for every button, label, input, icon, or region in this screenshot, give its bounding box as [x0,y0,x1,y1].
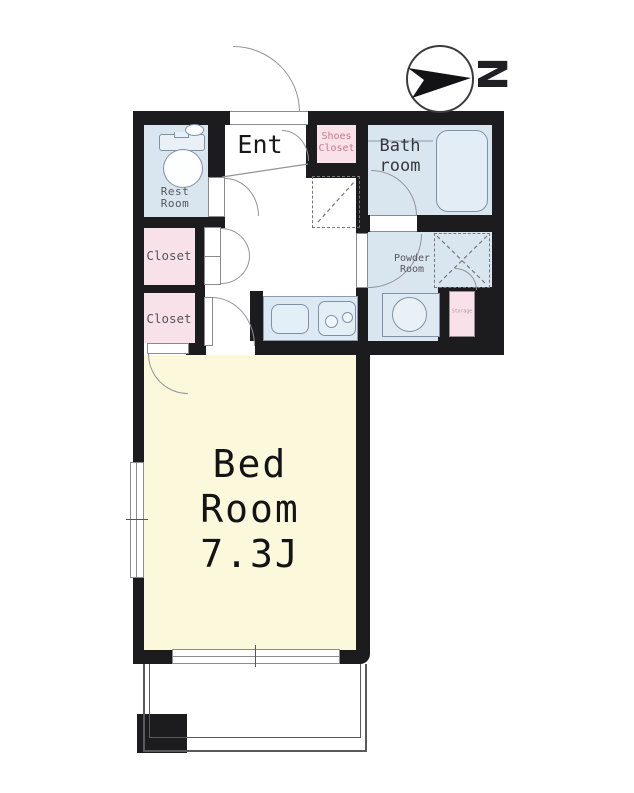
rest-room-label-line2: Room [161,197,190,210]
wall-bedroom-top [255,341,368,355]
closet-upper-label: Closet [143,249,195,263]
compass-north-label: N [469,53,513,95]
wall-right [492,111,504,355]
entrance-door-arc [233,46,300,112]
closet-upper-door-arc-bottom [221,256,250,284]
powder-room-label-line2: Room [400,264,424,275]
wall-bedroom-bottom-right [340,650,358,664]
bed-room-size-label: 7.3J [200,532,300,576]
toilet-bowl [163,149,203,188]
wall-top-right [306,111,504,125]
bedroom-left-window [130,462,144,578]
closet-upper-door-split [205,256,220,257]
storage-label: Storage [449,309,475,315]
bedroom-door-arc [212,297,255,346]
compass-circle [406,45,474,113]
bath-room-door-threshold [370,215,417,232]
washing-machine-drum [392,297,427,332]
bed-room-label-line2: Room [200,487,300,531]
floor-plan: N Ent RestRoom ShoesCloset Bathroom Powd… [0,0,634,793]
powder-room-label: PowderRoom [381,253,443,275]
stove-burner-right [342,312,353,323]
wall-closet-divider [133,285,205,293]
rest-room-door-arc [225,178,259,216]
bedroom-left-window-tick [126,519,148,520]
powder-room-label-line1: Powder [394,253,430,264]
bed-room-label-line1: Bed [213,442,288,486]
powder-room-door-leaf [356,233,368,288]
bed-room-label: BedRoom7.3J [150,442,350,577]
refrigerator-space [312,176,360,228]
wall-restroom-right-upper [208,123,225,178]
wall-bath-powder-right [417,215,492,232]
shoes-closet-label-line2: Closet [318,143,354,154]
closet-upper-door-arc-top [221,228,250,256]
bath-room-label-line1: Bath [380,136,421,156]
shoes-closet-label: ShoesCloset [315,131,358,155]
bath-room-label-line2: room [380,156,421,176]
bath-room-label: Bathroom [366,136,434,176]
closet-lower-label: Closet [143,312,195,326]
bedroom-left-window-midline [136,462,137,578]
wall-bedroom-bottom-left [133,650,173,664]
north-arrow-icon [408,47,472,111]
shoes-closet-label-line1: Shoes [321,131,351,142]
rest-room-sink [185,124,204,136]
rest-room-door-leaf [208,177,225,217]
kitchen-sink [271,304,309,334]
rest-room-label: RestRoom [146,186,204,210]
stove-burner-left [325,315,338,328]
wall-bedroom-top-stub [186,343,206,355]
wall-bedroom-right [356,341,370,664]
bathtub [436,130,488,212]
wall-powder-bottom [356,341,504,355]
balcony-inner [149,664,361,738]
ent-label: Ent [228,131,292,159]
bedroom-bottom-window-midline [172,656,340,657]
closet-lower-door-leaf [147,343,189,354]
entrance-door-threshold [230,111,308,125]
